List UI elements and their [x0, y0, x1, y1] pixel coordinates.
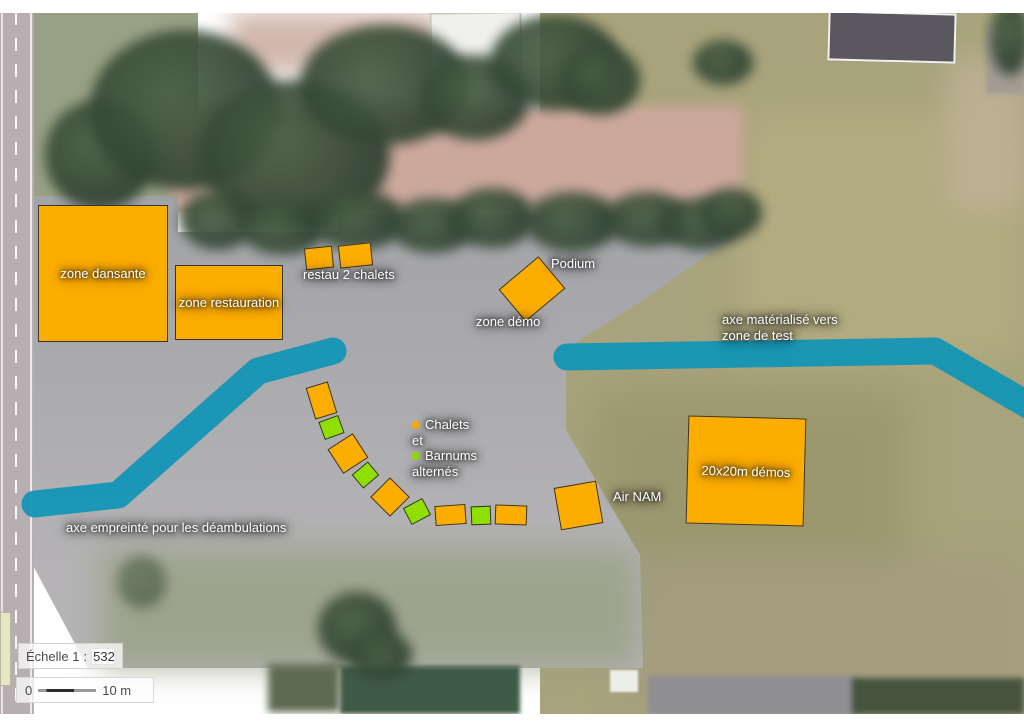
white-shed-bottom [610, 670, 638, 692]
legend: ChaletsetBarnumsalternés [412, 417, 477, 479]
label-podium: Podium [551, 256, 595, 272]
scale-value-field[interactable]: 532 [91, 648, 115, 665]
label-restau-2-chalets: restau 2 chalets [303, 267, 395, 283]
legend-row: alternés [412, 464, 477, 480]
chalet-dot-icon [412, 421, 420, 429]
scale-bar-zero: 0 [25, 683, 32, 698]
scale-indicator: Échelle 1 : 532 [18, 643, 123, 669]
legend-row: et [412, 433, 477, 449]
chalet-marker [434, 504, 466, 526]
tree-canopy [118, 556, 166, 608]
zone-dansante: zone dansante [38, 205, 168, 342]
road-line-center-dashed [15, 12, 17, 716]
demos-20x20-square-label: 20x20m démos [701, 462, 790, 479]
air-nam-square [554, 481, 604, 531]
zone-restauration-label: zone restauration [179, 295, 279, 310]
scale-bar: 0 10 m [16, 677, 154, 703]
label-axe-empreinte: axe empreinté pour les déambulations [66, 520, 286, 536]
legend-row: Barnums [412, 448, 477, 464]
legend-label: et [412, 433, 423, 449]
hedge-bottom-left [268, 664, 340, 712]
label-air-nam: Air NAM [613, 489, 661, 505]
tree-canopy [560, 45, 640, 115]
road-line-right-edge [30, 12, 32, 716]
inset-map-sliver [0, 612, 11, 686]
road-line-left-edge [1, 12, 3, 716]
scale-bar-distance: 10 m [102, 683, 131, 698]
restau-chalet-2 [338, 242, 373, 268]
hedge-bottom-right [852, 678, 1024, 714]
chalet-marker [495, 504, 528, 525]
barnum-marker [471, 506, 492, 526]
road-left [0, 12, 34, 716]
margin-bottom-white [0, 714, 1024, 728]
shed-row-bottom [648, 676, 858, 714]
legend-label: Barnums [425, 448, 477, 464]
tree-canopy [700, 188, 762, 238]
zone-restauration: zone restauration [175, 265, 283, 340]
demos-20x20-square: 20x20m démos [686, 415, 807, 526]
scale-bar-line [38, 689, 96, 692]
barnum-dot-icon [412, 452, 420, 460]
legend-row: Chalets [412, 417, 477, 433]
building-dark-roof [827, 10, 956, 63]
tree-canopy [450, 188, 535, 248]
legend-label: Chalets [425, 417, 469, 433]
margin-top-white [0, 0, 1024, 13]
scale-label: Échelle 1 [26, 649, 79, 664]
tree-canopy [693, 40, 753, 85]
label-axe-materialise: axe matérialisé verszone de test [722, 312, 838, 344]
label-zone-demo: zone démo [476, 314, 540, 330]
tree-canopy [350, 630, 412, 680]
zone-dansante-label: zone dansante [60, 266, 145, 281]
scale-colon: : [83, 649, 87, 664]
legend-label: alternés [412, 464, 458, 480]
event-site-map[interactable]: zone dansantezone restauration20x20m dém… [0, 0, 1024, 728]
